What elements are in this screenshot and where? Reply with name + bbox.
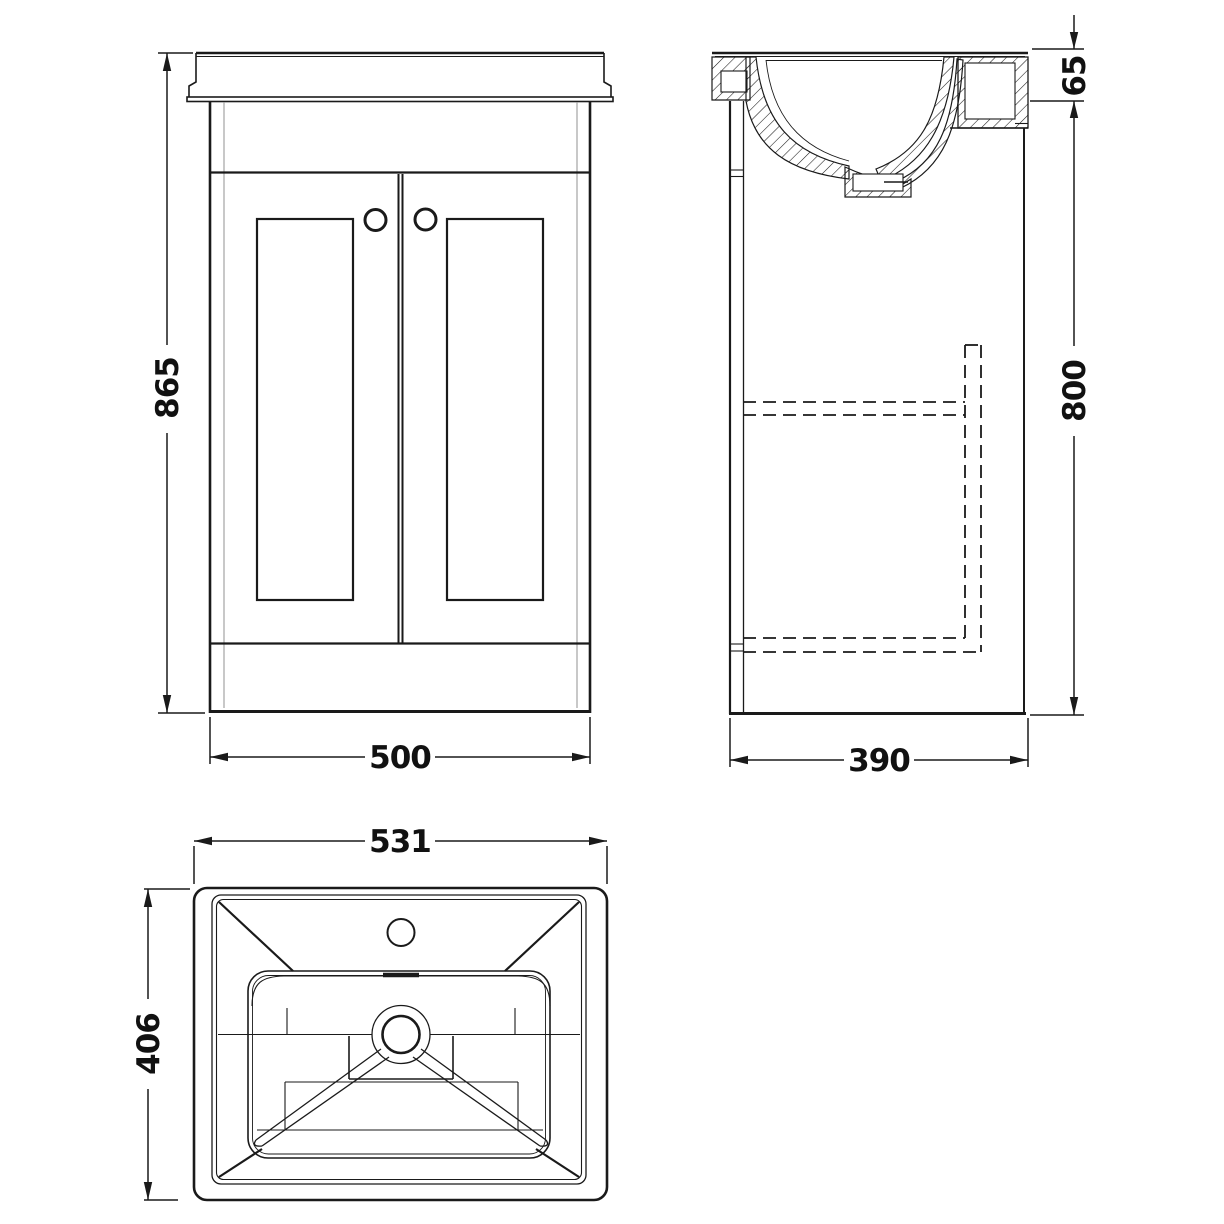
dim-plan-531: 531 [194,824,607,884]
dim-height-865: 865 [149,53,205,713]
right-door-panel [447,219,543,600]
side-basin-section [712,53,1028,197]
dim-text-865: 865 [150,357,186,419]
dim-basin-65: 65 [1030,15,1093,118]
front-countertop [187,53,613,102]
front-doors [257,174,543,643]
dim-text-800: 800 [1057,360,1093,422]
drain-inner [383,1016,420,1053]
dim-depth-390: 390 [730,718,1028,779]
front-view: 865 500 [149,53,613,776]
bowl-wall-right [876,57,954,181]
technical-drawing-page: 865 500 [0,0,1224,1224]
front-cabinet-body [209,101,591,713]
drain-outer [372,1006,430,1064]
dim-text-390: 390 [848,743,910,779]
tap-hole [388,919,415,946]
rear-ledge-section [958,57,1028,128]
side-view: 65 800 390 [712,15,1093,779]
left-door-panel [257,219,353,600]
left-door-knob [365,210,386,231]
dim-text-500: 500 [369,740,431,776]
dim-text-406: 406 [131,1013,167,1075]
drawing-canvas: 865 500 [0,0,1224,1224]
right-door-knob [415,209,436,230]
dim-text-531: 531 [369,824,431,860]
plan-basin-bowl [218,919,580,1158]
side-hidden-lines [743,345,981,652]
dim-width-500: 500 [210,717,590,776]
dim-cabinet-800: 800 [1030,101,1093,715]
bowl-wall-left [746,57,849,179]
plan-view: 531 406 [130,824,607,1200]
dim-text-65: 65 [1057,55,1093,96]
dim-plan-406: 406 [130,889,190,1200]
